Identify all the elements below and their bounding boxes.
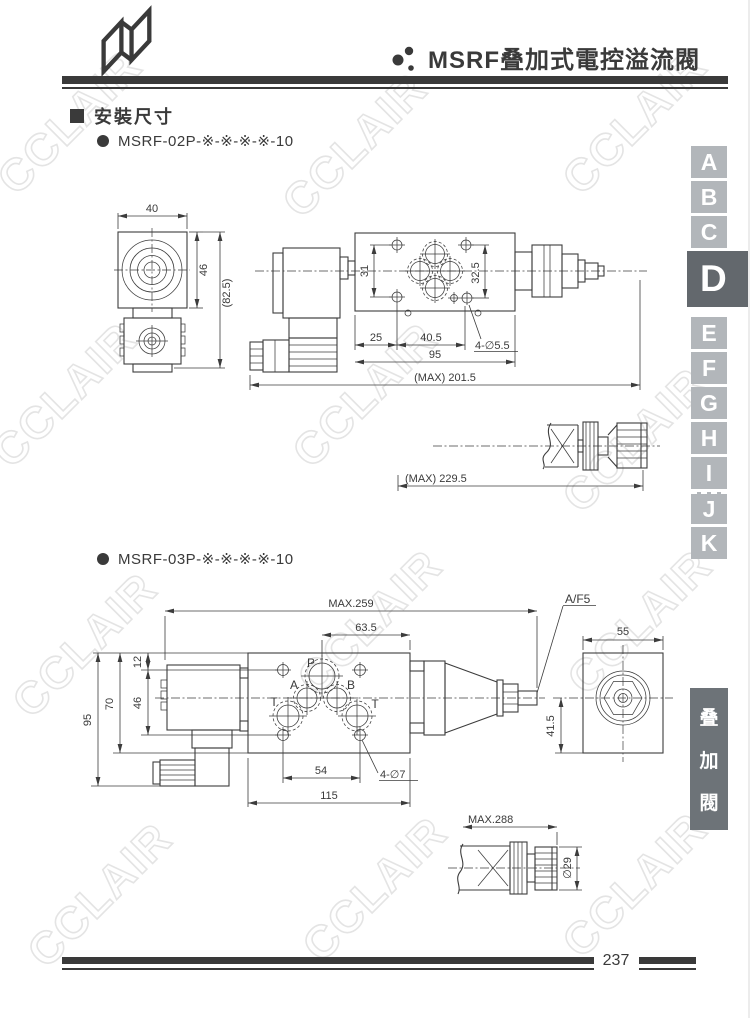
category-tab-stack-valve: 叠 加 閥 [690, 688, 728, 830]
section-heading-label: 安裝尺寸 [94, 103, 174, 129]
model-number: MSRF-02P-※-※-※-※-10 [118, 132, 294, 150]
dim-d29-label: ∅29 [562, 857, 574, 879]
02p-hand-knob-option: (MAX) 229.5 [398, 422, 660, 491]
index-tab-b: B [691, 181, 727, 213]
footer-rule-thick-right [639, 957, 696, 964]
msrf-02p-dimension-drawing: 40 46 (82.5) [85, 185, 665, 515]
wrench-af5-label: A/F5 [565, 592, 591, 606]
catalog-page: CCLAIR CCLAIR CCLAIR CCLAIR CCLAIR CCLAI… [0, 0, 750, 1018]
dim-115-label: 115 [320, 790, 338, 802]
header-rule-thick [62, 76, 728, 84]
circle-bullet-icon [97, 553, 109, 565]
dim-41-5-label: 41.5 [545, 715, 557, 736]
dim-max-259-label: MAX.259 [328, 598, 373, 610]
index-tab-a: A [691, 146, 727, 178]
dim-40-5-label: 40.5 [420, 332, 441, 344]
02p-top-view: 25 40.5 4-∅5.5 95 (MAX) 201.5 31 32.5 [250, 233, 647, 390]
dots-icon [391, 42, 421, 74]
02p-end-view: 40 46 (82.5) [114, 203, 233, 372]
port-p-label: P [307, 656, 315, 670]
square-bullet-icon [70, 109, 84, 123]
port-b-label: B [347, 678, 355, 692]
holes-4xd5-5-label: 4-∅5.5 [475, 340, 510, 352]
dim-max-201-5-label: (MAX) 201.5 [414, 372, 476, 384]
index-tab-f: F [691, 352, 727, 384]
footer-rule-thin-right [639, 968, 696, 970]
index-tab-c: C [691, 216, 727, 248]
port-a-label: A [290, 678, 298, 692]
dim-max-288-label: MAX.288 [468, 814, 513, 826]
index-tab-i: I [691, 457, 727, 489]
category-char: 閥 [699, 788, 718, 815]
header-rule-thin [62, 87, 728, 89]
index-tab-g: G [691, 387, 727, 419]
dim-95-label: 95 [82, 714, 94, 726]
port-t-right-label: T [371, 697, 379, 711]
footer-rule-thick [62, 957, 594, 964]
footer-rule-thin [62, 968, 594, 970]
index-tab-h: H [691, 422, 727, 454]
dim-12-label: 12 [132, 656, 144, 668]
dim-31-label: 31 [359, 265, 371, 277]
category-char: 加 [699, 746, 718, 773]
dim-46-label: 46 [132, 697, 144, 709]
page-title: MSRF叠加式電控溢流閥 [428, 40, 700, 75]
dim-40-label: 40 [146, 203, 158, 215]
index-tab-e: E [691, 317, 727, 349]
dim-55-label: 55 [617, 626, 629, 638]
dim-63-5-label: 63.5 [355, 622, 376, 634]
category-char: 叠 [699, 703, 718, 730]
section-heading: 安裝尺寸 [70, 103, 174, 129]
holes-4xd7-label: 4-∅7 [380, 769, 405, 781]
dim-54-label: 54 [315, 765, 327, 777]
dim-46-label: 46 [198, 264, 210, 276]
dim-82-5-label: (82.5) [221, 279, 233, 308]
msrf-03p-hand-knob-drawing: MAX.288 ∅29 [430, 810, 610, 905]
model-number: MSRF-03P-※-※-※-※-10 [118, 550, 294, 568]
index-tab-d-active: D [687, 251, 750, 307]
dim-70-label: 70 [104, 698, 116, 710]
model-label-msrf-03p: MSRF-03P-※-※-※-※-10 [97, 550, 294, 568]
dim-25-label: 25 [370, 332, 382, 344]
03p-side-view: 55 41.5 [545, 626, 673, 762]
port-t-left-label: T [270, 695, 278, 709]
msrf-03p-dimension-drawing: P A B T T 12 46 [85, 590, 685, 820]
page-number: 237 [596, 952, 636, 970]
dim-32-5-label: 32.5 [470, 262, 482, 283]
dim-95-label: 95 [429, 349, 441, 361]
index-tab-k: K [691, 527, 727, 559]
page-header: MSRF叠加式電控溢流閥 [391, 40, 700, 75]
dim-max-229-5-label: (MAX) 229.5 [405, 473, 467, 485]
company-logo-icon [90, 8, 168, 74]
circle-bullet-icon [97, 135, 109, 147]
index-tab-j: J [691, 492, 727, 524]
model-label-msrf-02p: MSRF-02P-※-※-※-※-10 [97, 132, 294, 150]
03p-top-view: P A B T T 12 46 [82, 592, 596, 807]
